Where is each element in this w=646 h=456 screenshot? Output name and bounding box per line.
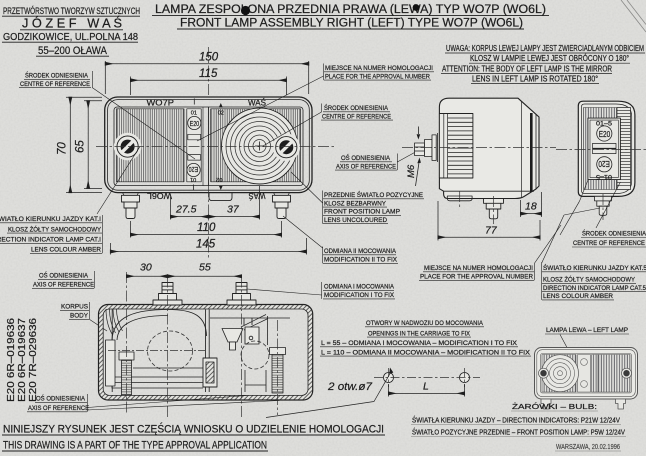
svg-text:E20 7R–029636: E20 7R–029636: [28, 318, 39, 402]
svg-text:ODMIANA I MOCOWANIA: ODMIANA I MOCOWANIA: [324, 284, 394, 291]
svg-text:LAMPA ZESPOLONA PRZEDNIA PRAWA: LAMPA ZESPOLONA PRZEDNIA PRAWA (LEWA) TY…: [155, 4, 546, 16]
svg-text:OŚ ODNIESIENIA: OŚ ODNIESIENIA: [341, 153, 390, 162]
svg-text:L: L: [423, 381, 429, 393]
svg-text:L = 110 – ODMIANA II MOCOWAN: L = 110 – ODMIANA II MOCOWANIA – MODIFIC…: [321, 349, 530, 356]
svg-text:ŚWIATŁA KIERUNKU JAZDY – DIREC: ŚWIATŁA KIERUNKU JAZDY – DIRECTION INDIC…: [412, 416, 620, 425]
svg-text:LENS COLOUR AMBER: LENS COLOUR AMBER: [31, 247, 101, 254]
svg-text:KLOSZ W LAMPIE LEWEJ JEST OBRÓ: KLOSZ W LAMPIE LEWEJ JEST OBRÓCONY O 180…: [470, 54, 629, 63]
svg-text:01–5: 01–5: [595, 173, 612, 179]
svg-text:77: 77: [485, 225, 498, 237]
svg-text:OŚ ODNIESIENIA: OŚ ODNIESIENIA: [39, 271, 88, 280]
svg-text:02: 02: [216, 176, 222, 182]
svg-text:MIEJSCE NA NUMER HOMOLOGACJI: MIEJSCE NA NUMER HOMOLOGACJI: [325, 65, 433, 72]
svg-text:PLACE FOR THE APPROVAL NUMBER: PLACE FOR THE APPROVAL NUMBER: [420, 274, 533, 281]
svg-text:LENS IN LEFT LAMP IS ROTATED 1: LENS IN LEFT LAMP IS ROTATED 180°: [472, 75, 598, 84]
svg-text:ŚRODEK ODNIESIENIA: ŚRODEK ODNIESIENIA: [324, 103, 388, 112]
svg-text:CENTRE OF REFERENCE: CENTRE OF REFERENCE: [20, 81, 90, 88]
svg-text:ŚRODEK ODNIESIENIA: ŚRODEK ODNIESIENIA: [25, 71, 88, 80]
svg-text:AXIS OF REFERENCE: AXIS OF REFERENCE: [28, 405, 89, 412]
svg-text:01: 01: [190, 176, 196, 182]
svg-text:KLOSZ BEZBARWNY: KLOSZ BEZBARWNY: [324, 200, 386, 207]
svg-text:E20 6R–019637: E20 6R–019637: [17, 318, 28, 402]
svg-text:GODZIKOWICE, UL.POLNA 148: GODZIKOWICE, UL.POLNA 148: [3, 32, 139, 43]
svg-text:55: 55: [199, 262, 211, 274]
svg-text:PLACE FOR THE APPROVAL NUMBER: PLACE FOR THE APPROVAL NUMBER: [325, 73, 430, 80]
svg-text:27.5: 27.5: [175, 204, 197, 216]
svg-text:E20: E20: [598, 159, 610, 168]
svg-text:55–200 OŁAWA: 55–200 OŁAWA: [38, 45, 108, 57]
svg-text:WAŚ: WAŚ: [248, 99, 266, 108]
svg-text:KLOSZ ŻÓŁTY SAMOCHODOWY: KLOSZ ŻÓŁTY SAMOCHODOWY: [8, 224, 101, 233]
svg-text:145: 145: [196, 239, 216, 251]
svg-text:PRZETWÓRSTWO TWORZYW SZTUCZNYC: PRZETWÓRSTWO TWORZYW SZTUCZNYCH: [3, 6, 140, 16]
svg-text:E20 6R–019636: E20 6R–019636: [6, 318, 17, 402]
svg-text:L = 55 – ODMIANA I MOCOWANIA: L = 55 – ODMIANA I MOCOWANIA – MODIFICAT…: [321, 340, 517, 347]
svg-text:FRONT LAMP ASSEMBLY RIGHT (LEF: FRONT LAMP ASSEMBLY RIGHT (LEFT) TYPE WO…: [180, 18, 523, 30]
svg-text:J Ó Z E F W A Ś: J Ó Z E F W A Ś: [22, 16, 122, 31]
svg-text:E20: E20: [599, 130, 611, 139]
svg-text:KORPUS: KORPUS: [61, 304, 88, 311]
svg-text:02: 02: [218, 111, 224, 117]
svg-text:2 otw.ø7: 2 otw.ø7: [327, 381, 373, 393]
svg-text:ATTENTION: THE BODY OF LEFT LA: ATTENTION: THE BODY OF LEFT LAMP IS THE …: [442, 65, 612, 74]
svg-text:CENTRE OF REFERENCE: CENTRE OF REFERENCE: [573, 240, 645, 247]
svg-text:LENS COLOUR AMBER: LENS COLOUR AMBER: [543, 293, 613, 300]
svg-text:WO7P: WO7P: [147, 99, 175, 108]
svg-text:THIS DRAWING IS A PART OF THE: THIS DRAWING IS A PART OF THE TYPE APPRO…: [3, 440, 267, 452]
svg-text:ŚWIATŁO POZYCYJNE PRZEDNIE – F: ŚWIATŁO POZYCYJNE PRZEDNIE – FRONT POSIT…: [412, 428, 625, 437]
svg-text:70: 70: [57, 142, 69, 155]
svg-text:WO6L: WO6L: [146, 191, 172, 200]
svg-text:30: 30: [140, 262, 152, 274]
svg-text:37: 37: [227, 204, 240, 216]
svg-text:LENS UNCOLOURED: LENS UNCOLOURED: [324, 217, 387, 224]
svg-text:ŚWIATŁO KIERUNKU JAZDY KAT.I: ŚWIATŁO KIERUNKU JAZDY KAT.I: [0, 214, 101, 223]
svg-text:FRONT POSITION LAMP: FRONT POSITION LAMP: [324, 209, 400, 216]
svg-text:MODIFICATION I TO FIX: MODIFICATION I TO FIX: [324, 292, 394, 299]
svg-text:DIRECTION INDICATOR LAMP CAT.I: DIRECTION INDICATOR LAMP CAT.I: [0, 237, 101, 244]
svg-text:ŻARÓWKI – BULB:: ŻARÓWKI – BULB:: [512, 402, 597, 411]
svg-text:CENTRE OF REFERENCE: CENTRE OF REFERENCE: [322, 113, 391, 120]
svg-text:LAMPA LEWA – LEFT LAMP: LAMPA LEWA – LEFT LAMP: [546, 327, 628, 334]
svg-text:110: 110: [197, 222, 216, 234]
svg-text:KLOSZ ŻÓŁTY SAMOCHODOWY: KLOSZ ŻÓŁTY SAMOCHODOWY: [543, 275, 635, 284]
svg-text:WARSZAWA, 20.02.1996: WARSZAWA, 20.02.1996: [556, 444, 620, 451]
svg-text:MODIFICATION II TO FIX: MODIFICATION II TO FIX: [324, 257, 397, 264]
svg-text:18: 18: [525, 201, 537, 213]
svg-text:E20: E20: [190, 121, 200, 128]
svg-text:M6: M6: [406, 164, 417, 178]
svg-text:ODMIANA II MOCOWANIA: ODMIANA II MOCOWANIA: [324, 248, 396, 255]
svg-text:115: 115: [199, 68, 218, 80]
svg-text:UWAGA: KORPUS LEWEJ LAMPY JEST: UWAGA: KORPUS LEWEJ LAMPY JEST ZWIERCIAD…: [446, 44, 644, 53]
svg-text:BODY: BODY: [70, 313, 88, 320]
svg-text:OPENINGS IN THE CARRIAGE TO FI: OPENINGS IN THE CARRIAGE TO FIX: [368, 330, 470, 337]
svg-text:WAŚ: WAŚ: [249, 191, 266, 200]
svg-text:PRZEDNIE ŚWIATŁO POZYCYJNE: PRZEDNIE ŚWIATŁO POZYCYJNE: [324, 190, 423, 199]
svg-text:01: 01: [191, 111, 197, 117]
svg-text:ŚWIATŁO KIERUNKU JAZDY KAT.5: ŚWIATŁO KIERUNKU JAZDY KAT.5: [543, 263, 646, 272]
svg-text:AXIS OF REFERENCE: AXIS OF REFERENCE: [33, 282, 94, 289]
svg-text:NINIEJSZY RYSUNEK JEST CZĘŚCIĄ: NINIEJSZY RYSUNEK JEST CZĘŚCIĄ WNIOSKU O…: [3, 423, 384, 436]
svg-text:DIRECTION INDICATOR LAMP CAT.5: DIRECTION INDICATOR LAMP CAT.5: [543, 285, 646, 292]
svg-text:ŚRODEK ODNIESIENIA: ŚRODEK ODNIESIENIA: [582, 229, 646, 238]
svg-text:65: 65: [75, 140, 87, 153]
svg-text:OŚ ODNIESIENIA: OŚ ODNIESIENIA: [36, 394, 85, 403]
svg-text:OTWORY W NADWOZIU DO MOCOWANIA: OTWORY W NADWOZIU DO MOCOWANIA: [366, 320, 483, 327]
svg-text:150: 150: [199, 52, 219, 64]
svg-text:E20: E20: [189, 165, 199, 172]
svg-text:MIEJSCE NA NUMER HOMOLOGACJI: MIEJSCE NA NUMER HOMOLOGACJI: [424, 265, 533, 272]
svg-text:AXIS OF REFERENCE: AXIS OF REFERENCE: [336, 163, 396, 170]
